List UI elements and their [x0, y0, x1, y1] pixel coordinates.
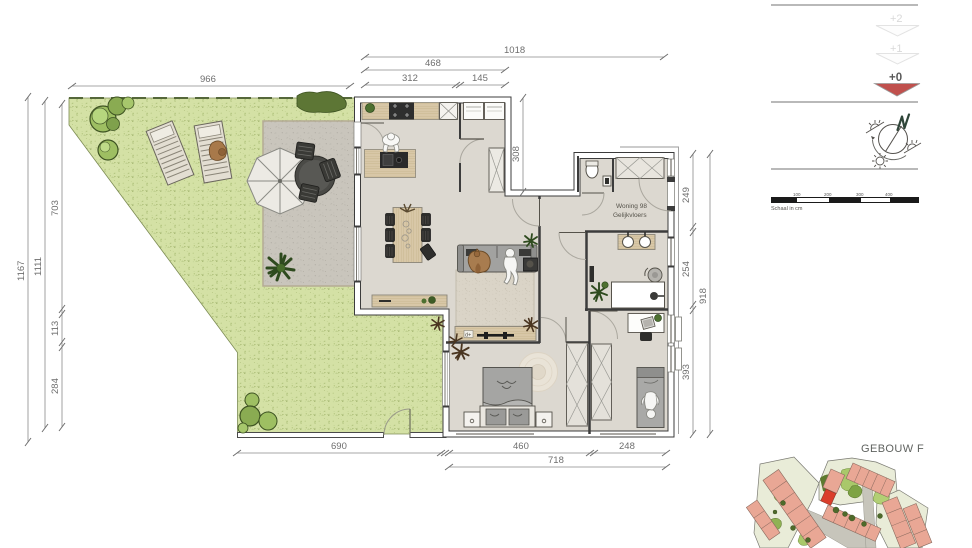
svg-text:GEBOUW F: GEBOUW F	[861, 443, 924, 455]
svg-text:312: 312	[402, 73, 418, 84]
svg-text:1167: 1167	[16, 261, 27, 281]
svg-text:+2: +2	[890, 13, 903, 25]
svg-text:d+: d+	[465, 333, 471, 339]
svg-text:Woning 98: Woning 98	[616, 203, 647, 210]
svg-text:966: 966	[200, 74, 216, 85]
svg-text:254: 254	[681, 261, 692, 277]
svg-text:+0: +0	[889, 72, 902, 84]
svg-text:1018: 1018	[504, 45, 525, 56]
svg-text:Schaal in cm: Schaal in cm	[771, 206, 803, 212]
svg-text:100: 100	[793, 192, 801, 197]
svg-text:284: 284	[50, 378, 61, 394]
svg-text:918: 918	[698, 288, 709, 304]
svg-text:300: 300	[856, 192, 864, 197]
svg-text:145: 145	[472, 73, 488, 84]
svg-text:200: 200	[824, 192, 832, 197]
svg-text:308: 308	[511, 146, 522, 162]
svg-text:1111: 1111	[33, 257, 44, 276]
svg-text:718: 718	[548, 455, 564, 466]
svg-text:690: 690	[331, 441, 347, 452]
svg-text:113: 113	[50, 321, 61, 336]
svg-text:400: 400	[885, 192, 893, 197]
svg-text:460: 460	[513, 441, 529, 452]
svg-text:393: 393	[681, 364, 692, 380]
svg-text:Gelijkvloers: Gelijkvloers	[613, 212, 647, 219]
svg-text:248: 248	[619, 441, 635, 452]
svg-text:249: 249	[681, 187, 692, 203]
svg-text:468: 468	[425, 58, 441, 69]
svg-text:703: 703	[50, 200, 61, 216]
